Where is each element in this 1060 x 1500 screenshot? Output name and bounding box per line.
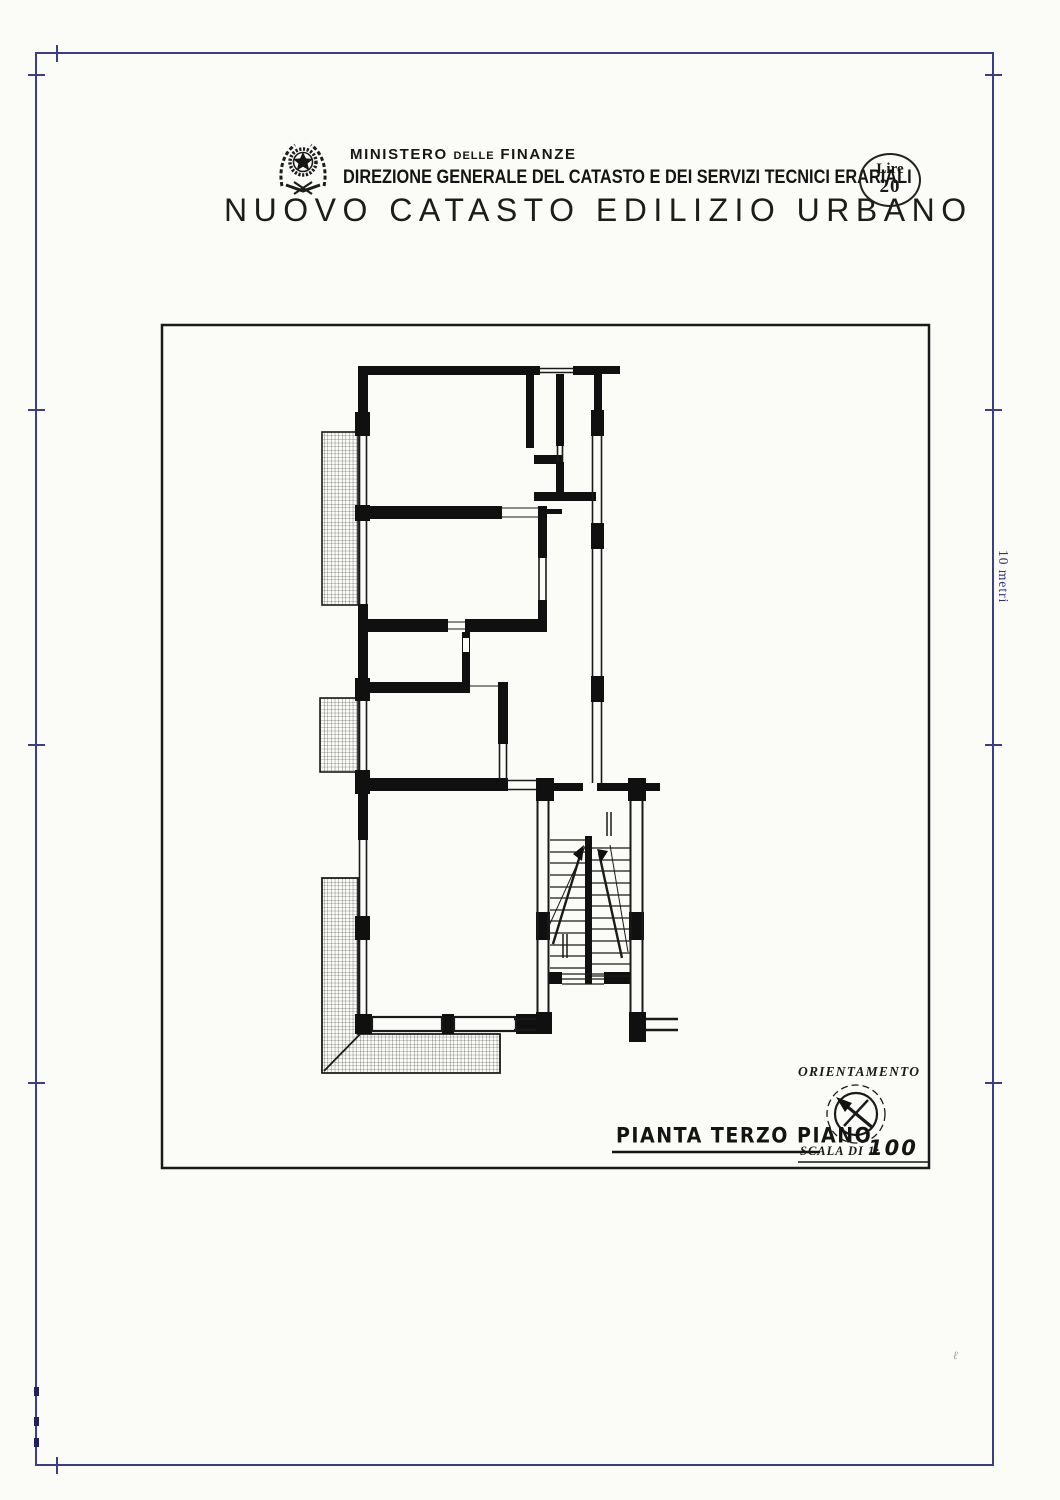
scale-value: 100 (868, 1136, 918, 1160)
floor-plan-drawing (0, 0, 1060, 1500)
stray-mark: ℓ (953, 1350, 958, 1362)
plan-frame (162, 325, 929, 1168)
orientation-label: ORIENTAMENTO (798, 1064, 918, 1080)
margin-scale-note: 10 metri (995, 550, 1011, 620)
scanned-cadastral-sheet: { "colors": { "paper": "#fbfbf8", "ink":… (0, 0, 1060, 1500)
balcony-terrace-hatching (320, 432, 500, 1073)
stair-arrow-up (548, 838, 589, 944)
windows-thin-lines (360, 369, 602, 1032)
plan-title: PIANTA TERZO PIANO (616, 1124, 821, 1148)
